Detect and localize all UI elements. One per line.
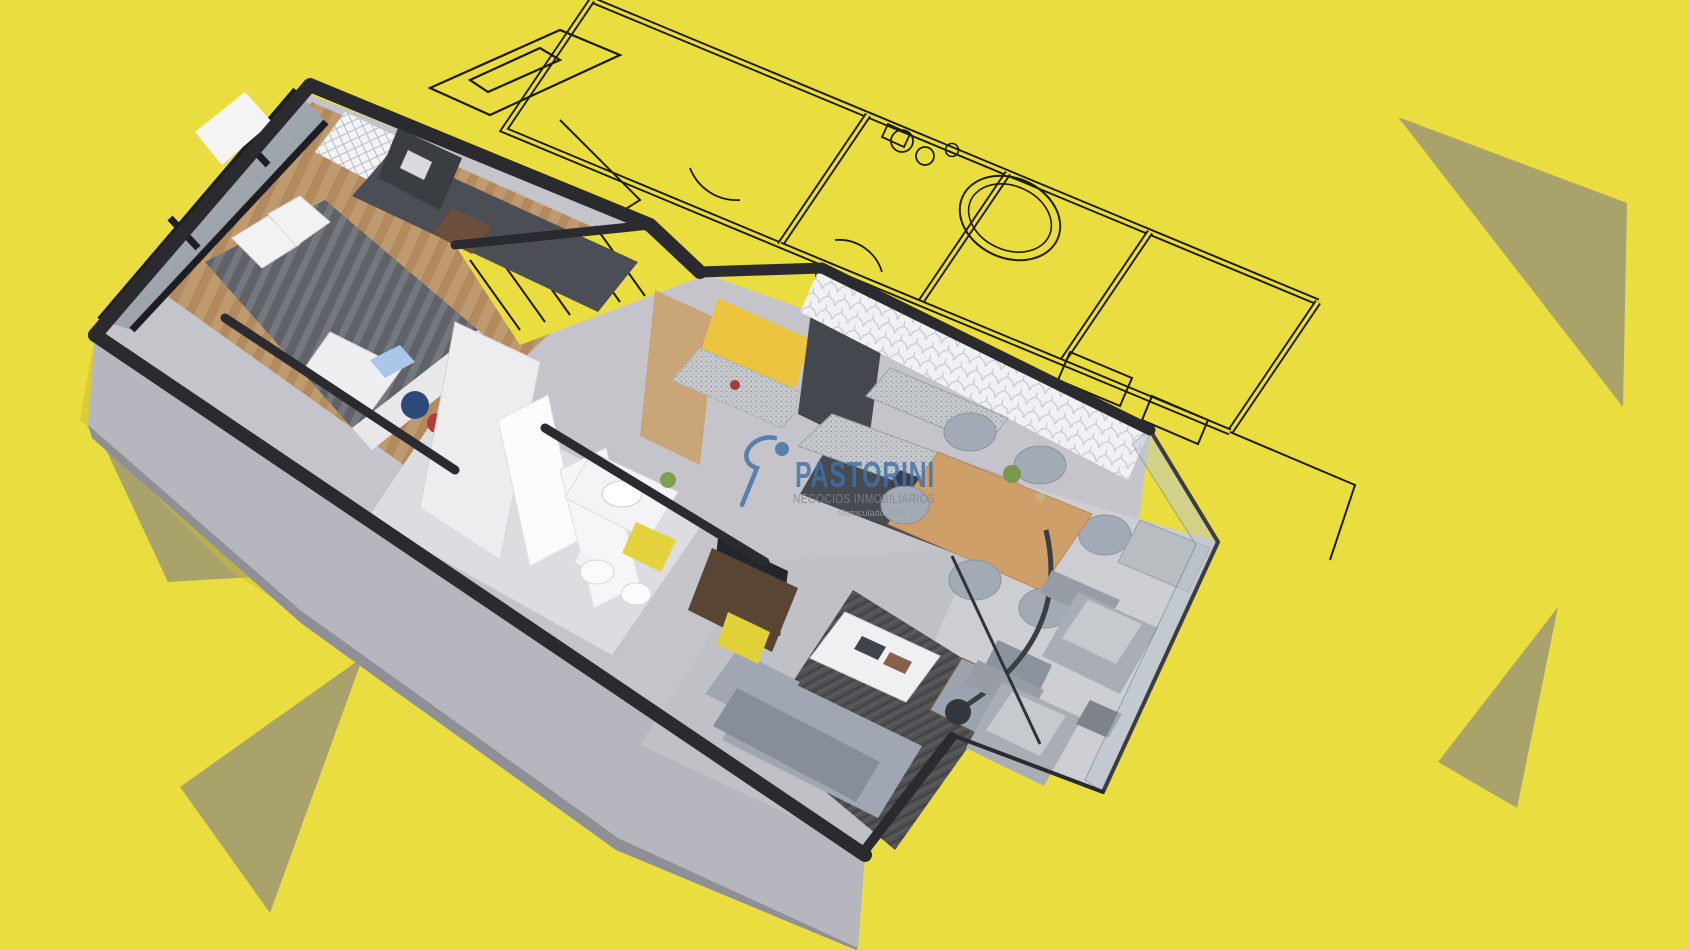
table-vase	[1035, 493, 1045, 503]
laundry-basket-blue	[401, 391, 429, 419]
dining-chair	[944, 413, 996, 451]
floor-plan-scene: PASTORINI NEGOCIOS INMOBILIARIOS Matricu…	[0, 0, 1690, 950]
bidet	[621, 583, 651, 605]
table-plant	[1003, 465, 1021, 483]
dining-chair	[1014, 446, 1066, 484]
floor-lamp-shade	[945, 699, 971, 725]
brand-tagline: NEGOCIOS INMOBILIARIOS	[793, 492, 935, 506]
brand-registration: Matriculado 4017	[838, 508, 907, 518]
brand-name: PASTORINI	[795, 454, 935, 495]
bathroom-plant	[660, 472, 676, 488]
counter-prop	[730, 380, 740, 390]
real-estate-listing-image: PASTORINI NEGOCIOS INMOBILIARIOS Matricu…	[0, 0, 1690, 950]
toilet	[580, 560, 614, 584]
